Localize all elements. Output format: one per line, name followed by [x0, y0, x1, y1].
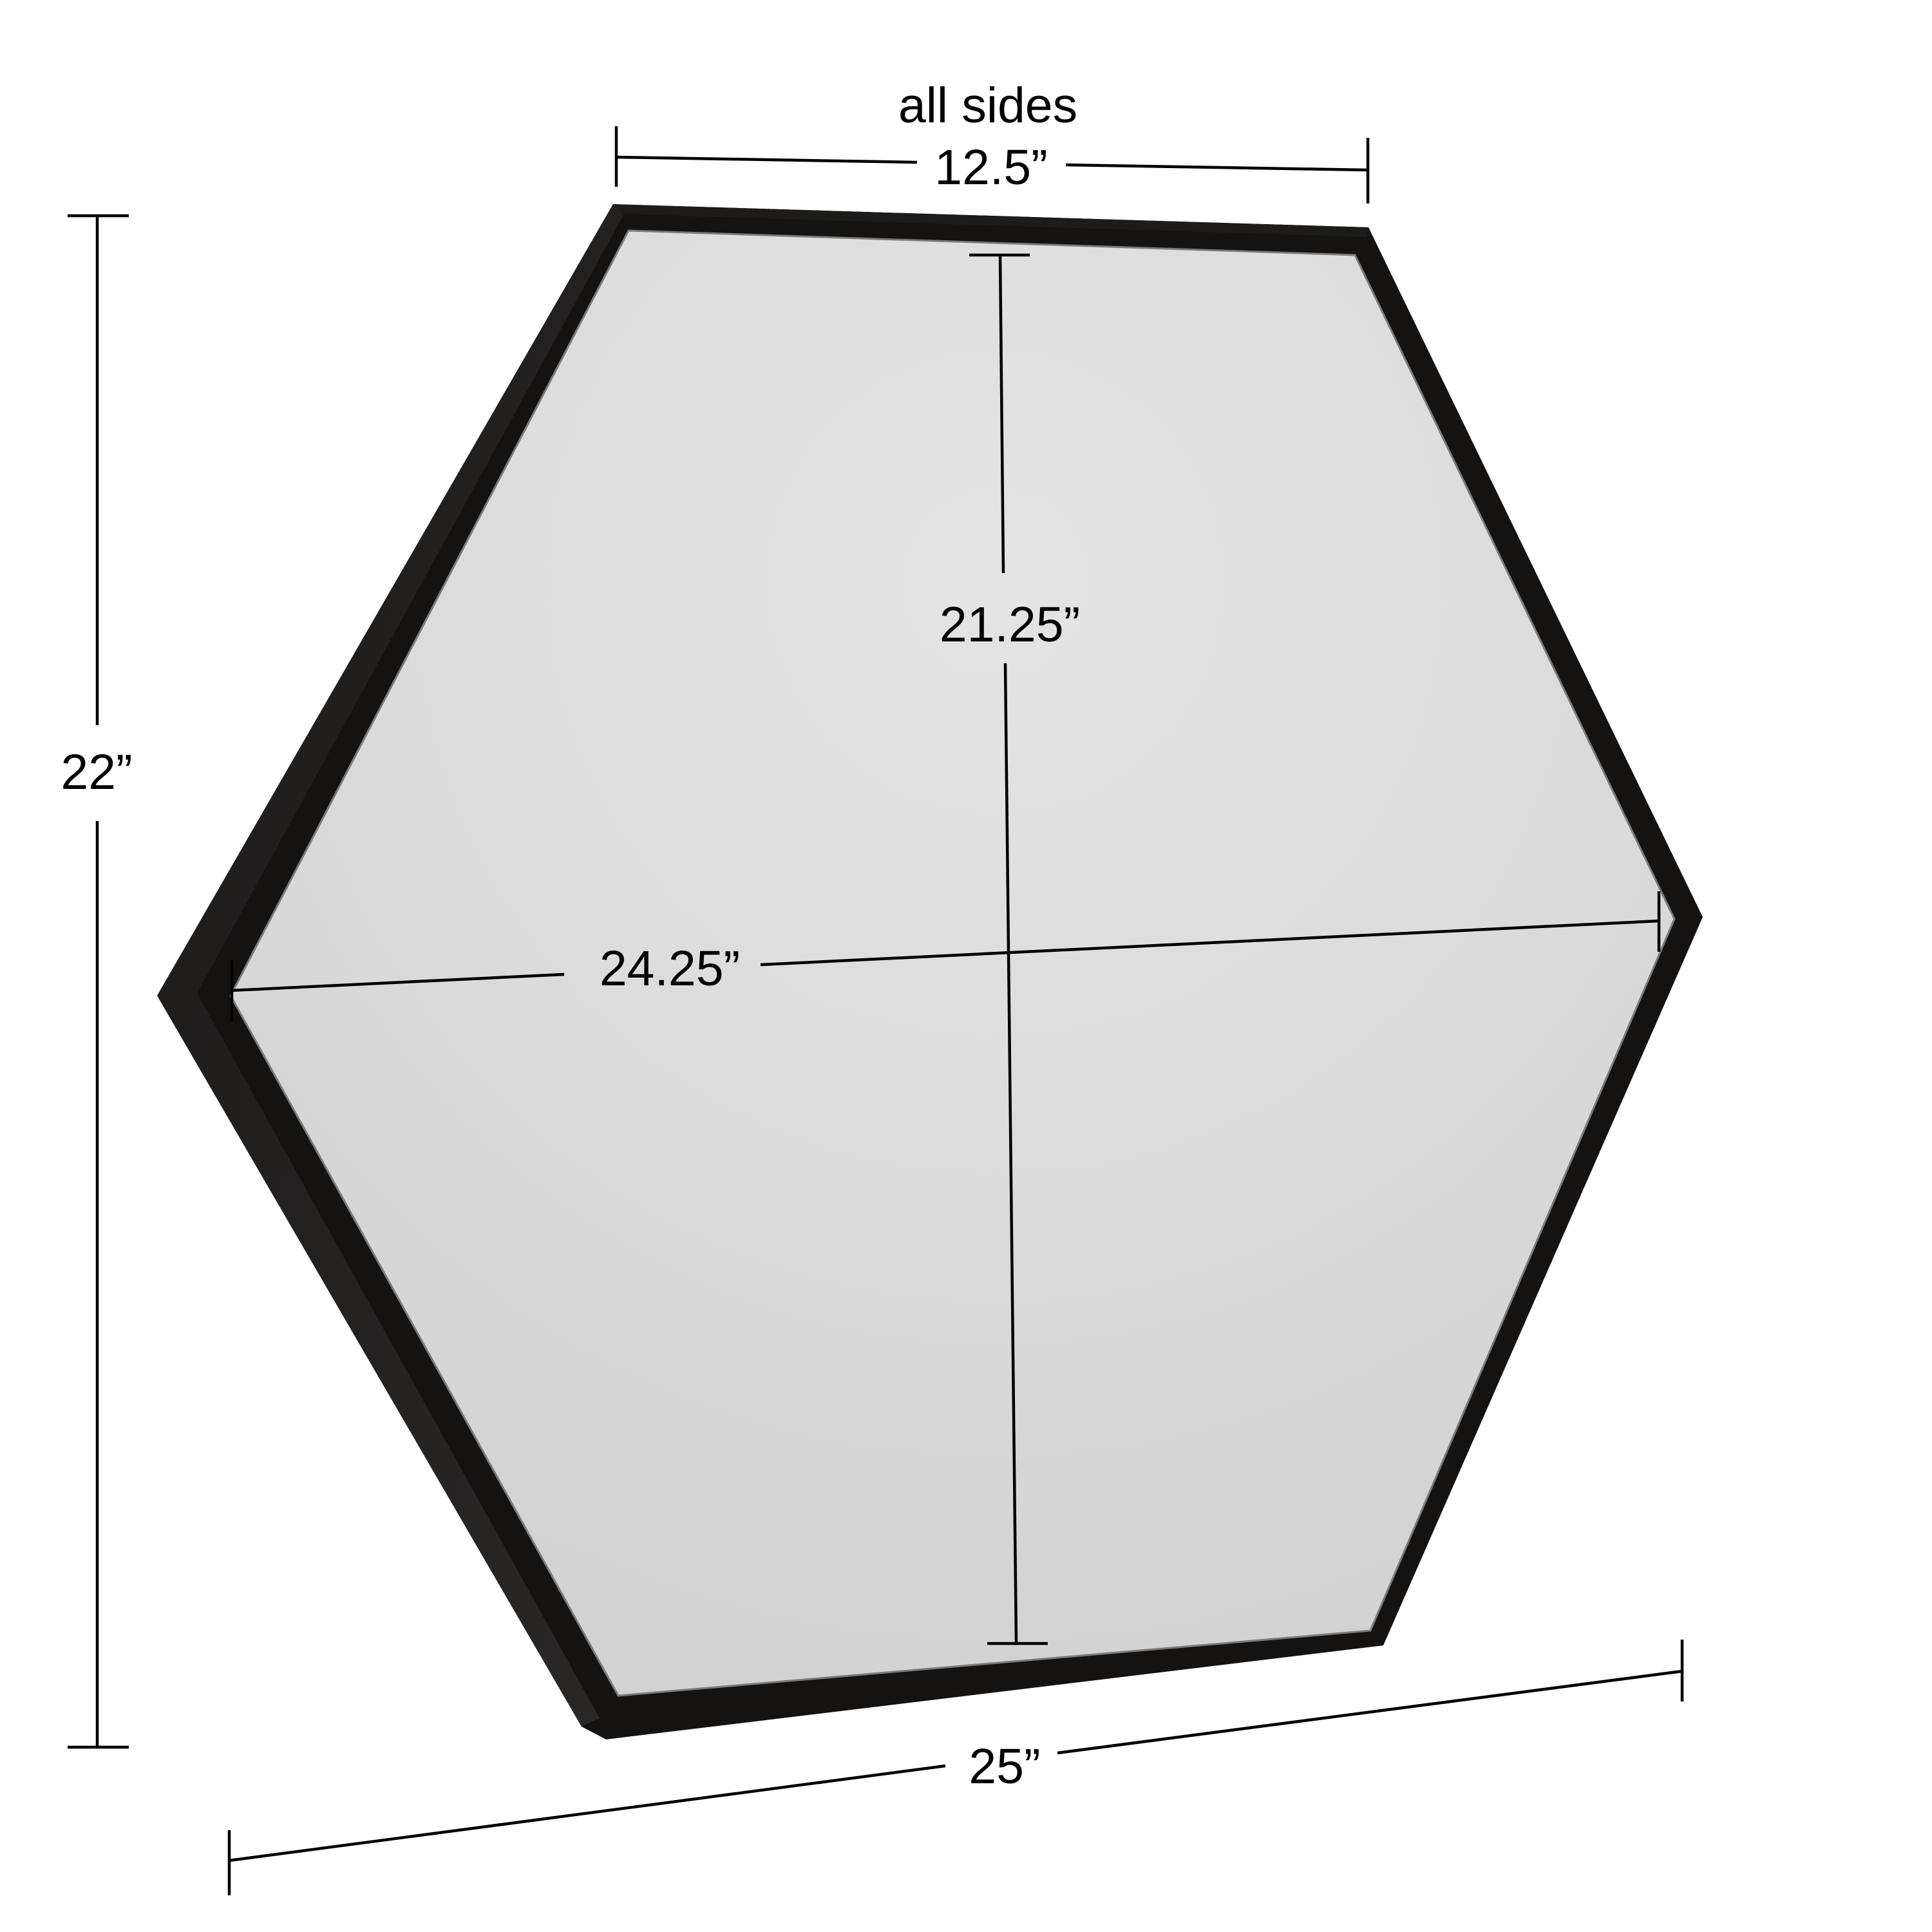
svg-text:25”: 25” — [969, 1739, 1040, 1794]
svg-text:all sides: all sides — [898, 78, 1077, 133]
svg-text:21.25”: 21.25” — [940, 597, 1080, 652]
svg-text:12.5”: 12.5” — [934, 140, 1048, 195]
svg-text:24.25”: 24.25” — [600, 941, 740, 996]
svg-text:22”: 22” — [61, 744, 132, 800]
